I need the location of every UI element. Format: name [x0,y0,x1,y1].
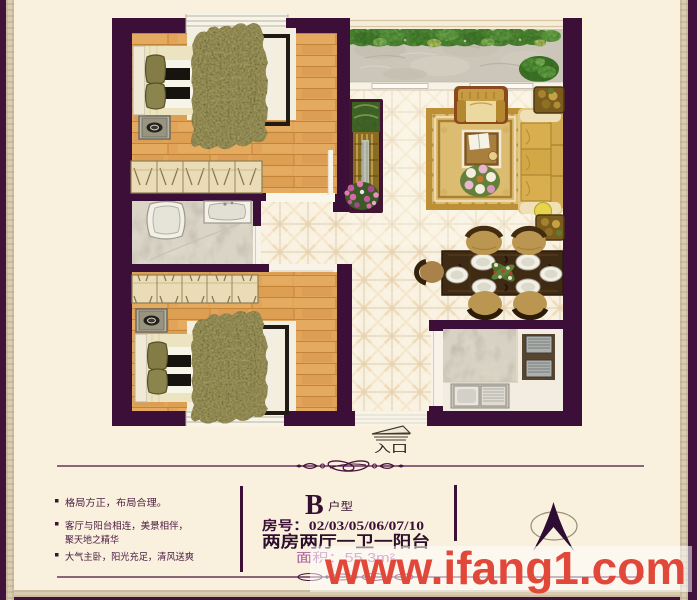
svg-text:B: B [305,490,324,521]
svg-text:房号：02/03/05/06/07/10: 房号：02/03/05/06/07/10 [262,518,424,533]
svg-text:格局方正，布局合理。: 格局方正，布局合理。 [65,497,167,509]
svg-text:客厅与阳台相连，美景相伴，: 客厅与阳台相连，美景相伴， [65,520,188,532]
svg-text:www.ifang1.com: www.ifang1.com [324,542,686,594]
svg-text:入口: 入口 [374,443,408,455]
svg-text:户型: 户型 [328,499,353,513]
svg-text:大气主卧，阳光充足，清风送爽: 大气主卧，阳光充足，清风送爽 [65,551,194,563]
svg-text:聚天地之精华: 聚天地之精华 [65,534,119,546]
